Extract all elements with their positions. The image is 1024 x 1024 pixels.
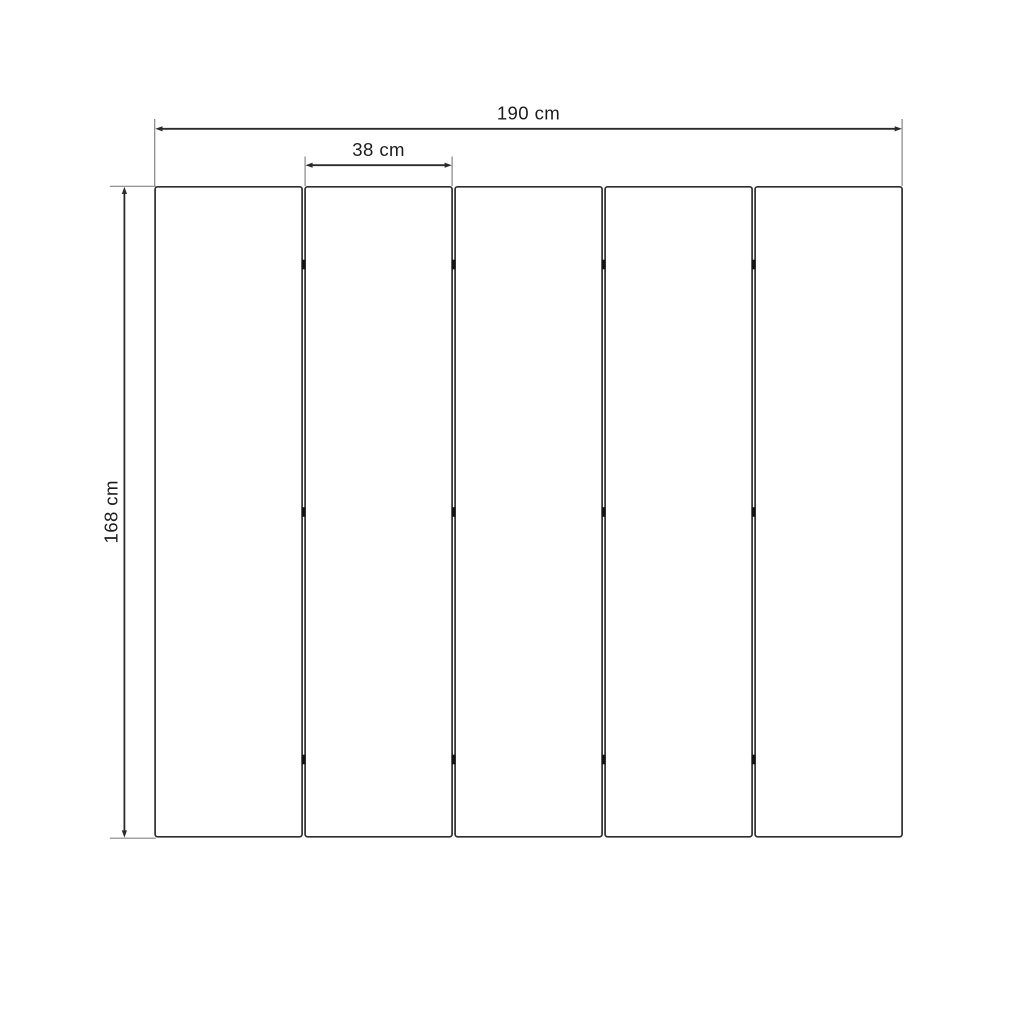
svg-text:168 cm: 168 cm [100,480,121,543]
svg-text:190 cm: 190 cm [497,103,560,124]
svg-text:38 cm: 38 cm [352,139,405,160]
